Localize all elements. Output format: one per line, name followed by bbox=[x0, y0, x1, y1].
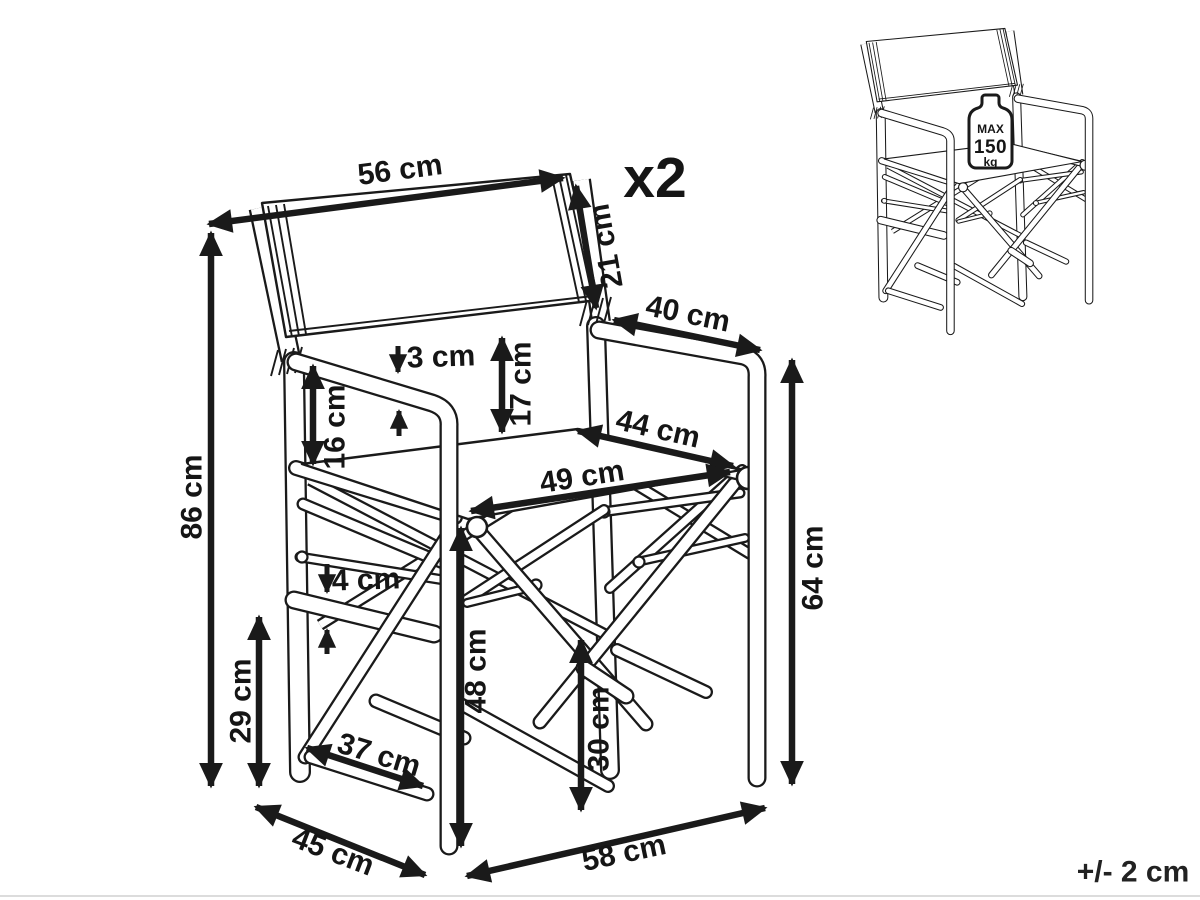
dim-label-armrest-to-rail: 16 cm bbox=[319, 384, 352, 469]
max-load-word: MAX bbox=[977, 122, 1004, 136]
max-load-unit: kg bbox=[983, 155, 997, 169]
dim-label-rung-thickness: 4 cm bbox=[331, 562, 401, 597]
diagram-canvas: MAX 150 kg 56 cm 21 cm 40 cm 3 cm 17 cm … bbox=[0, 0, 1200, 900]
dimension-diagram-page: MAX 150 kg 56 cm 21 cm 40 cm 3 cm 17 cm … bbox=[0, 0, 1200, 900]
dim-label-armrest-thickness: 3 cm bbox=[406, 339, 476, 374]
main-chair-drawing bbox=[259, 174, 759, 846]
dim-label-armrest-height: 64 cm bbox=[797, 525, 830, 610]
dim-label-seat-front-height: 48 cm bbox=[460, 628, 493, 713]
dim-label-backrest-width: 56 cm bbox=[356, 148, 445, 192]
quantity-label: x2 bbox=[623, 146, 686, 210]
inset-chair-drawing bbox=[865, 28, 1090, 330]
dim-label-total-height: 86 cm bbox=[176, 454, 209, 539]
dim-label-brace-to-floor: 30 cm bbox=[583, 686, 616, 771]
dim-label-base-depth: 45 cm bbox=[287, 821, 378, 882]
tolerance-label: +/- 2 cm bbox=[1077, 856, 1190, 889]
dim-label-backrest-to-seat: 17 cm bbox=[505, 341, 538, 426]
dim-label-rung-height: 29 cm bbox=[225, 658, 258, 743]
max-load-badge: MAX 150 kg bbox=[969, 95, 1012, 169]
dim-label-base-width: 58 cm bbox=[579, 828, 669, 878]
